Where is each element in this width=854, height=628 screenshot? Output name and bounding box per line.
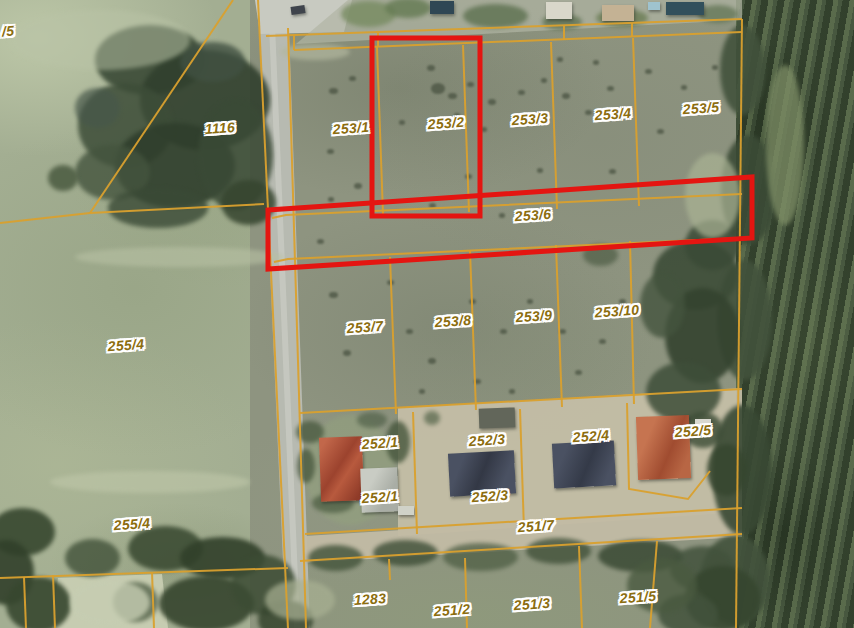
parcel-label: 252/3 [468,431,506,450]
parcel-label: 251/3 [513,595,551,614]
parcel-label: 252/1 [361,434,399,453]
parcel-label: 255/4 [113,515,151,534]
parcel-label: 251/7 [517,517,555,536]
parcel-label: 253/8 [434,312,472,331]
parcel-label: 253/9 [515,307,553,326]
parcel-label: 253/2 [427,114,465,133]
parcel-label: 252/5 [674,422,712,441]
parcel-label: /5 [1,23,14,40]
parcel-label: 255/4 [107,336,145,355]
parcel-label: 1283 [353,590,386,608]
parcel-label: 253/1 [332,119,370,138]
parcel-label: 253/7 [346,318,384,337]
parcel-label: 253/10 [594,301,640,320]
map-canvas[interactable]: /51116253/1253/2253/3253/4253/5253/6253/… [0,0,854,628]
parcel-label: 251/5 [619,588,657,607]
parcel-label: 253/6 [514,206,552,225]
parcel-label: 253/3 [511,110,549,129]
parcel-label: 1116 [204,119,235,137]
parcel-label: 252/4 [572,427,610,446]
parcel-label: 252/3 [471,487,509,506]
parcel-label: 253/5 [682,99,720,118]
parcel-label: 251/2 [433,601,471,620]
parcel-label: 252/1 [361,488,399,507]
parcel-labels-layer: /51116253/1253/2253/3253/4253/5253/6253/… [0,0,854,628]
parcel-label: 253/4 [594,105,632,124]
